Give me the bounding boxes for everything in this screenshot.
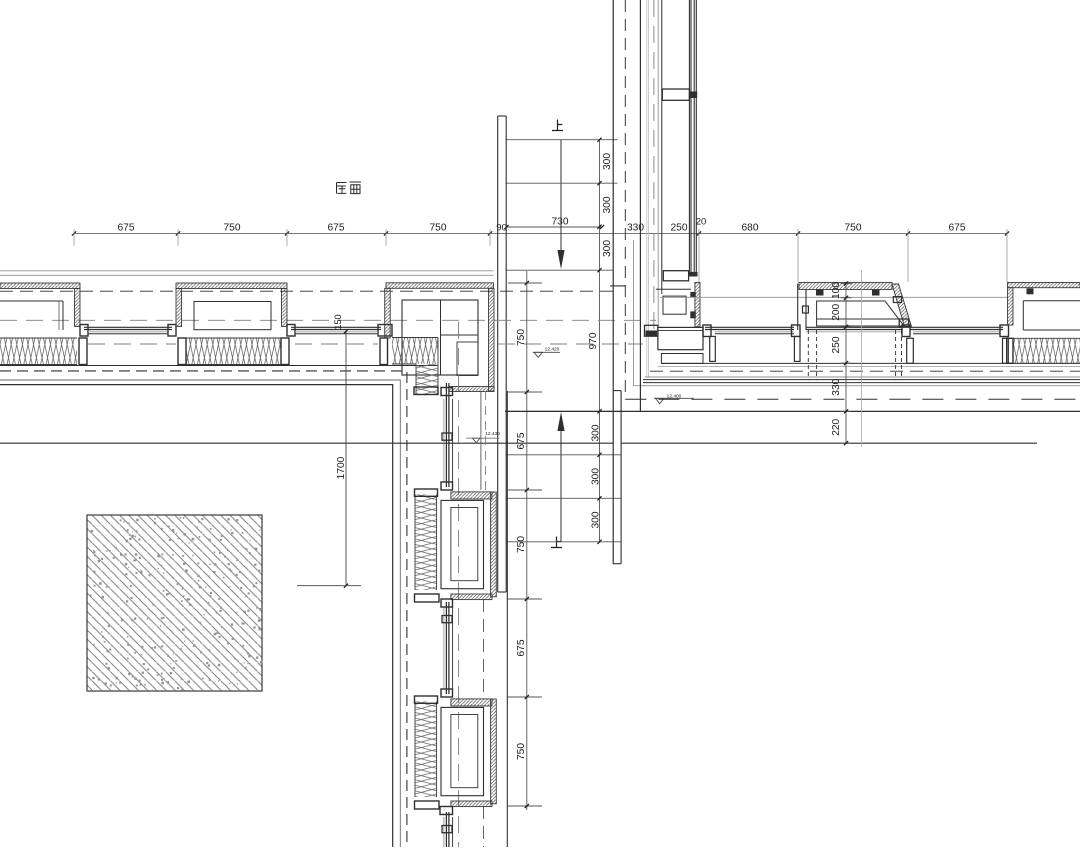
svg-text:680: 680 <box>742 223 759 234</box>
svg-text:150: 150 <box>333 314 343 329</box>
svg-text:750: 750 <box>430 223 447 234</box>
svg-text:300: 300 <box>602 240 613 257</box>
svg-text:675: 675 <box>516 432 527 449</box>
svg-text:250: 250 <box>831 336 842 353</box>
svg-text:300: 300 <box>602 153 613 170</box>
svg-text:730: 730 <box>552 217 569 228</box>
svg-text:20: 20 <box>696 217 707 228</box>
svg-text:675: 675 <box>516 639 527 656</box>
svg-text:300: 300 <box>591 424 602 441</box>
svg-text:300: 300 <box>591 468 602 485</box>
svg-text:750: 750 <box>516 743 527 760</box>
svg-text:750: 750 <box>516 536 527 553</box>
svg-text:300: 300 <box>602 196 613 213</box>
svg-text:750: 750 <box>516 329 527 346</box>
svg-text:330: 330 <box>627 223 644 234</box>
svg-text:675: 675 <box>118 223 135 234</box>
svg-text:100: 100 <box>831 282 842 299</box>
svg-text:250: 250 <box>671 223 688 234</box>
svg-text:200: 200 <box>831 303 842 320</box>
svg-text:12.400: 12.400 <box>667 393 682 399</box>
svg-text:330: 330 <box>831 378 842 395</box>
svg-text:220: 220 <box>831 418 842 435</box>
svg-text:300: 300 <box>591 511 602 528</box>
svg-text:12.430: 12.430 <box>485 431 500 437</box>
svg-text:12.420: 12.420 <box>545 346 560 352</box>
svg-text:675: 675 <box>328 223 345 234</box>
svg-text:675: 675 <box>949 223 966 234</box>
svg-text:1700: 1700 <box>336 456 347 479</box>
svg-text:970: 970 <box>588 332 599 349</box>
svg-text:750: 750 <box>224 223 241 234</box>
svg-text:750: 750 <box>845 223 862 234</box>
